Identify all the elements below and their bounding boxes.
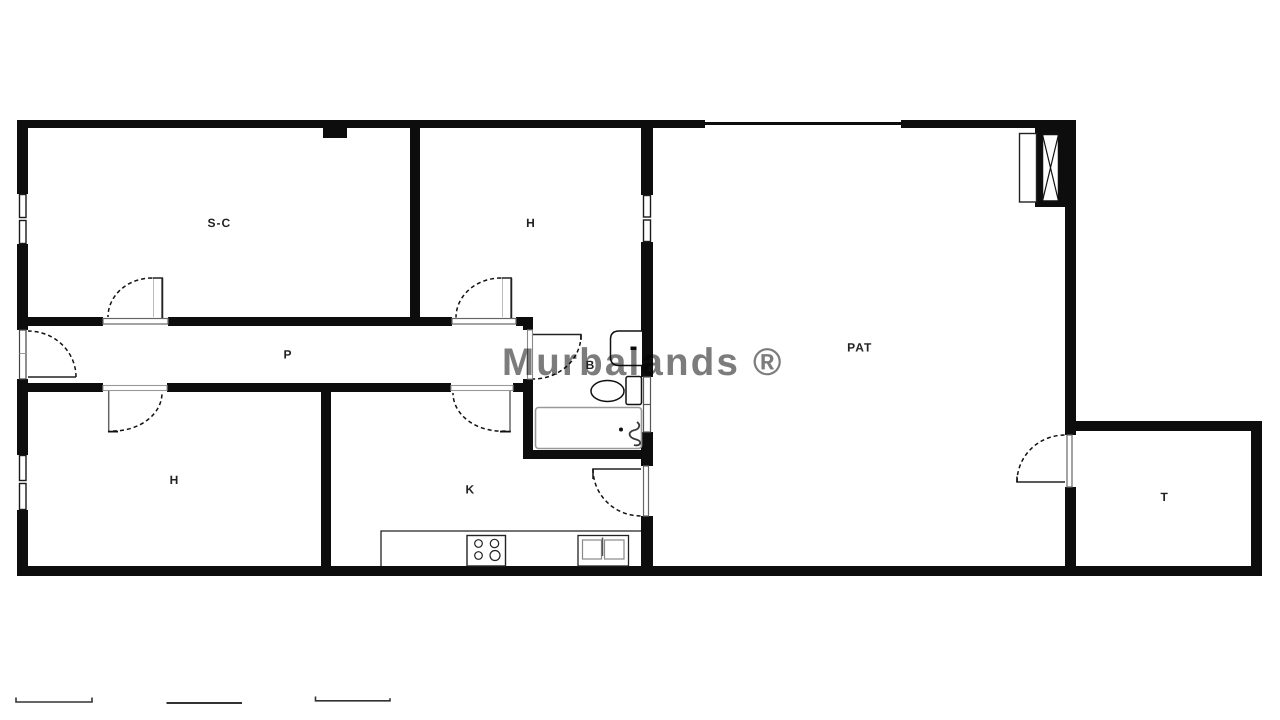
svg-text:B: B	[586, 358, 596, 372]
svg-text:T: T	[1161, 490, 1169, 504]
svg-text:H: H	[526, 216, 536, 230]
svg-text:S-C: S-C	[207, 216, 231, 230]
svg-text:P: P	[283, 348, 292, 362]
svg-text:Murbalands ®: Murbalands ®	[502, 341, 784, 384]
svg-text:PAT: PAT	[847, 341, 872, 355]
svg-text:K: K	[465, 482, 475, 496]
svg-text:H: H	[170, 473, 180, 487]
